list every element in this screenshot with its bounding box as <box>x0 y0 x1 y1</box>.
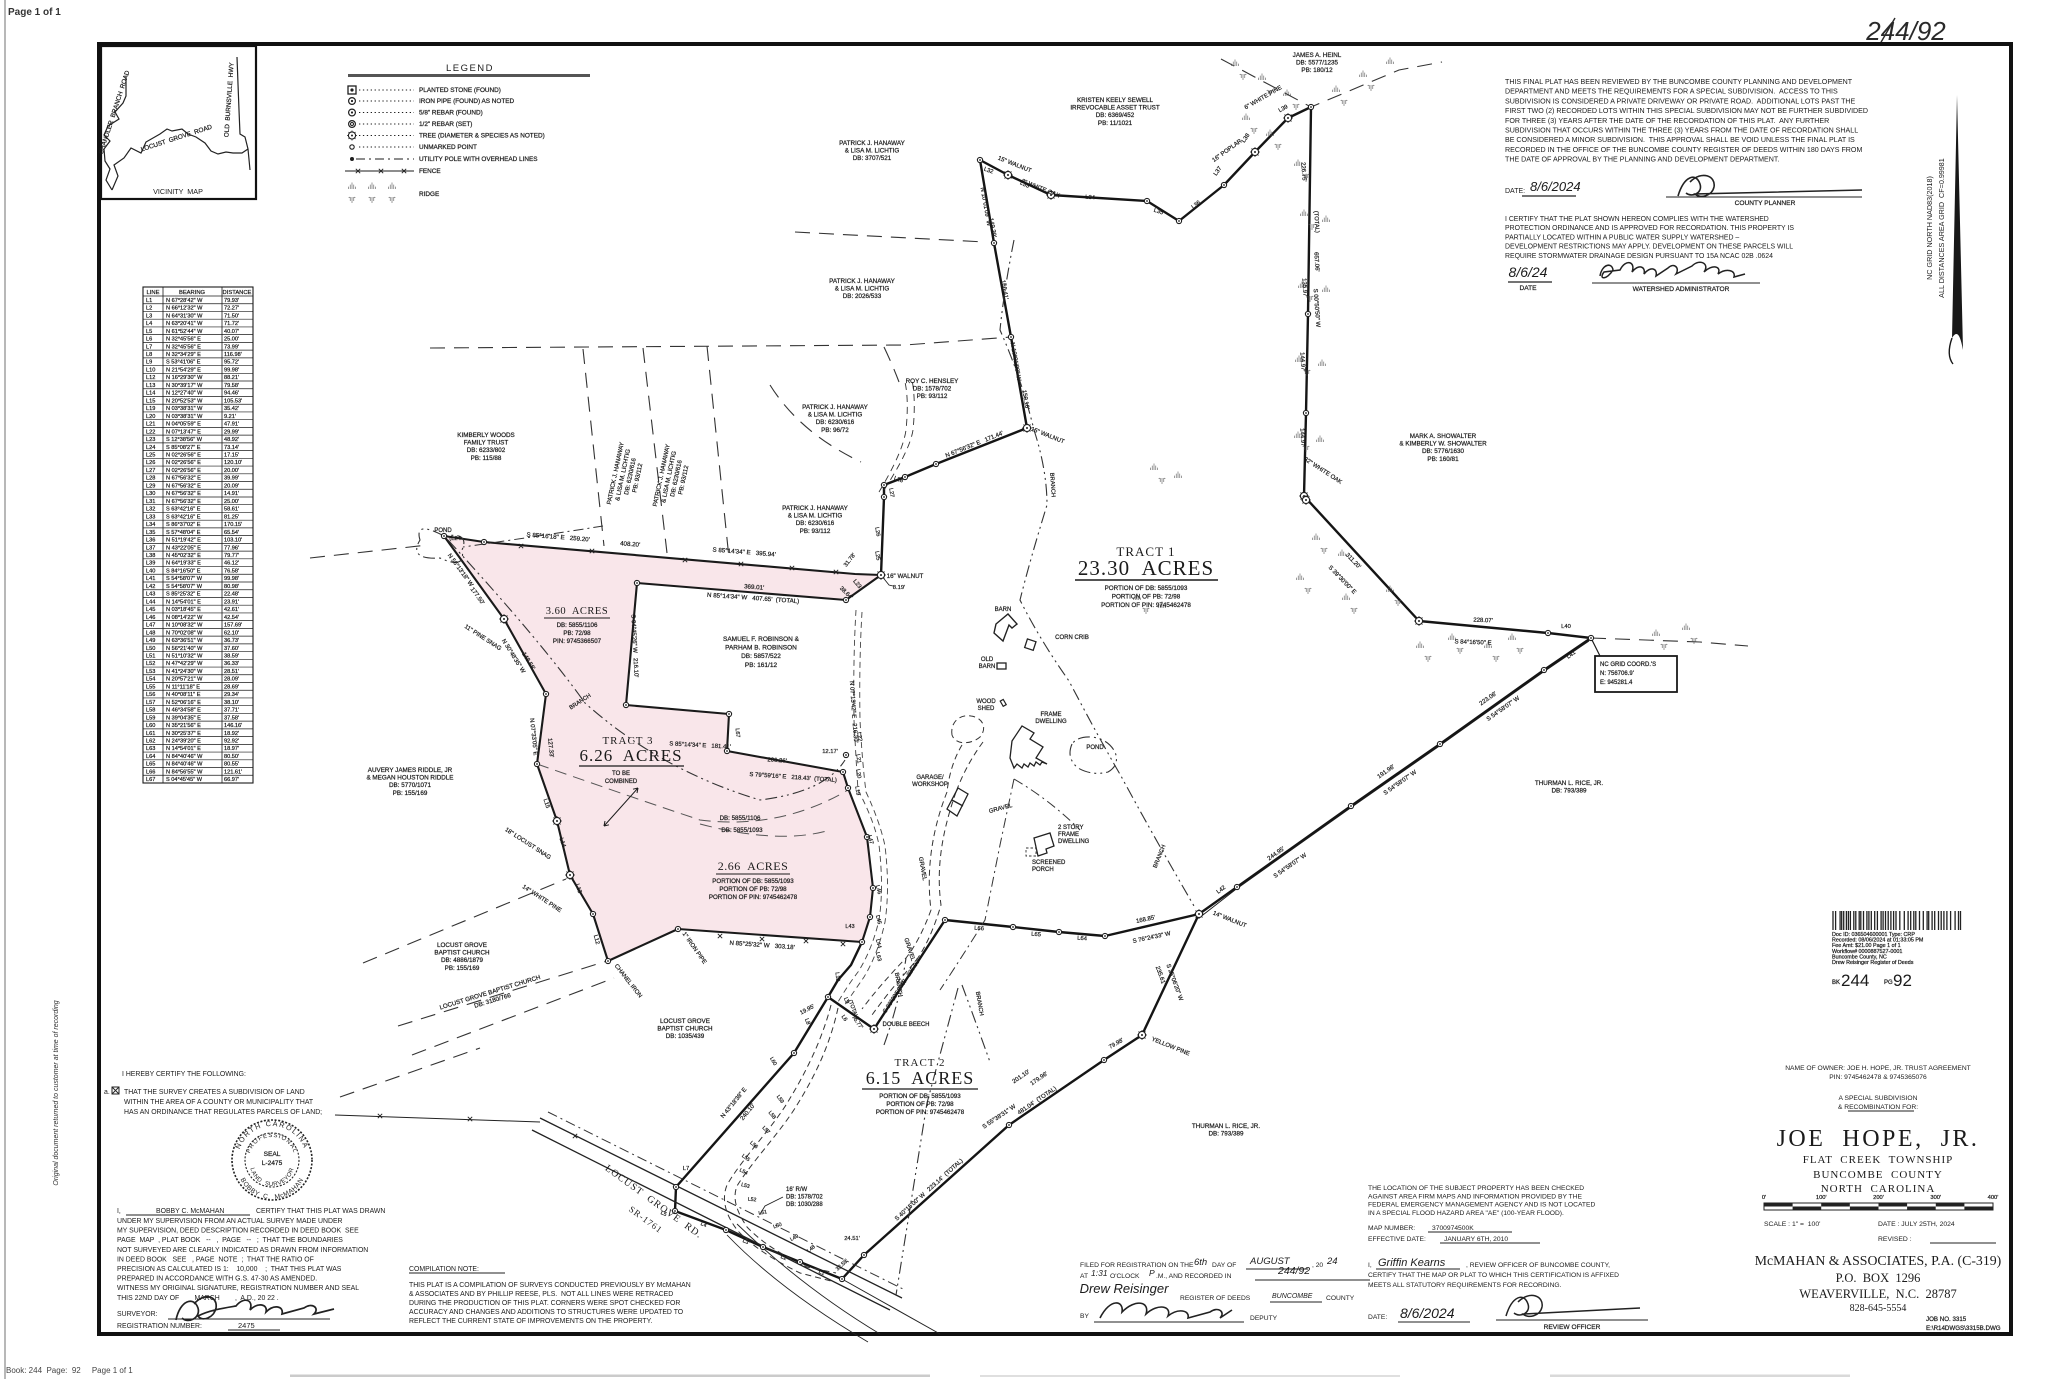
svg-text:58.61': 58.61' <box>224 507 239 513</box>
svg-text:16" WALNUT: 16" WALNUT <box>887 573 924 580</box>
svg-text:I,: I, <box>1368 1262 1372 1269</box>
svg-text:UTILITY POLE WITH OVERHEAD LIN: UTILITY POLE WITH OVERHEAD LINES <box>419 156 538 163</box>
svg-text:3.60 ACRES: 3.60 ACRES <box>546 606 608 617</box>
svg-text:N 30°39'17" W: N 30°39'17" W <box>166 383 203 389</box>
svg-text:CORN CRIB: CORN CRIB <box>1055 635 1089 641</box>
svg-text:DB: 6230/616: DB: 6230/616 <box>816 419 855 426</box>
svg-text:DB: 2026/533: DB: 2026/533 <box>843 293 882 300</box>
svg-text:L42: L42 <box>146 584 155 590</box>
svg-text:PATRICK J. HANAWAY: PATRICK J. HANAWAY <box>829 278 895 285</box>
svg-text:AT: AT <box>1080 1273 1088 1280</box>
svg-text:BUNCOMBE COUNTY: BUNCOMBE COUNTY <box>1813 1169 1943 1181</box>
svg-text:L4: L4 <box>146 321 152 327</box>
svg-text:81.25': 81.25' <box>224 514 239 520</box>
svg-text:I HEREBY CERTIFY THE FOLLOWING: I HEREBY CERTIFY THE FOLLOWING: <box>122 1071 246 1078</box>
svg-text:L65: L65 <box>146 762 155 768</box>
svg-text:REGISTRATION NUMBER:: REGISTRATION NUMBER: <box>117 1323 202 1330</box>
svg-text:N 64°31'30" W: N 64°31'30" W <box>166 313 203 319</box>
svg-text:PIN: 9745366507: PIN: 9745366507 <box>553 638 602 645</box>
svg-text:L19: L19 <box>146 406 155 412</box>
svg-text:12.17': 12.17' <box>822 749 838 755</box>
svg-text:L10: L10 <box>834 972 841 982</box>
svg-text:N 32°45'56" E: N 32°45'56" E <box>166 344 201 350</box>
svg-text:L10: L10 <box>146 367 155 373</box>
svg-text:400': 400' <box>1988 1195 1999 1201</box>
svg-text:DB: 5855/1106: DB: 5855/1106 <box>720 815 761 822</box>
svg-text:LOCUST GROVE: LOCUST GROVE <box>437 942 487 949</box>
svg-text:FAMILY TRUST: FAMILY TRUST <box>464 440 509 447</box>
svg-text:SUBDIVISION THAT OCCURS WITHIN: SUBDIVISION THAT OCCURS WITHIN THE THREE… <box>1505 127 1858 135</box>
svg-text:37.60': 37.60' <box>224 646 239 652</box>
svg-text:COMPILATION NOTE:: COMPILATION NOTE: <box>409 1266 479 1273</box>
svg-text:(L24: (L24 <box>449 536 461 542</box>
svg-text:SEAL: SEAL <box>264 1151 281 1158</box>
svg-text:L67: L67 <box>146 777 155 783</box>
svg-text:, 20: , 20 <box>1312 1262 1323 1269</box>
svg-text:L9: L9 <box>146 360 152 366</box>
svg-text:L30: L30 <box>146 491 155 497</box>
svg-text:L34: L34 <box>146 522 155 528</box>
svg-text:NORTH CAROLINA: NORTH CAROLINA <box>1821 1183 1936 1195</box>
svg-text:39.99': 39.99' <box>224 476 239 482</box>
svg-text:THE LOCATION OF THE SUBJECT PR: THE LOCATION OF THE SUBJECT PROPERTY HAS… <box>1368 1185 1584 1192</box>
svg-text:N 20°52'53" W: N 20°52'53" W <box>166 398 203 404</box>
svg-text:77.96': 77.96' <box>224 545 239 551</box>
svg-text:CERTIFY THAT THIS PLAT WAS DRA: CERTIFY THAT THIS PLAT WAS DRAWN <box>256 1208 385 1215</box>
svg-text:TREE (DIAMETER & SPECIES AS NO: TREE (DIAMETER & SPECIES AS NOTED) <box>419 133 545 140</box>
svg-text:244: 244 <box>1841 971 1869 990</box>
svg-text:JOB NO. 3315: JOB NO. 3315 <box>1926 1316 1967 1323</box>
svg-text:L46: L46 <box>146 615 155 621</box>
svg-text:116.98': 116.98' <box>224 352 242 358</box>
svg-text:DB: 1578/702: DB: 1578/702 <box>913 386 952 393</box>
svg-text:SCALE : 1" = 100': SCALE : 1" = 100' <box>1764 1221 1820 1228</box>
svg-text:120.10': 120.10' <box>224 460 242 466</box>
svg-text:DEPARTMENT AND MEETS THE REQUI: DEPARTMENT AND MEETS THE REQUIREMENTS FO… <box>1505 88 1838 96</box>
svg-text:2 STORY: 2 STORY <box>1058 825 1083 831</box>
svg-text:LINE: LINE <box>147 290 160 296</box>
svg-text:79.58': 79.58' <box>224 383 239 389</box>
svg-text:73.99': 73.99' <box>224 344 239 350</box>
svg-text:L15: L15 <box>146 398 155 404</box>
svg-text:L41: L41 <box>146 576 155 582</box>
svg-text:N 51°10'32" W: N 51°10'32" W <box>166 653 203 659</box>
svg-text:.M., AND RECORDED IN: .M., AND RECORDED IN <box>1156 1273 1232 1280</box>
svg-text:DB: 5855/1093: DB: 5855/1093 <box>721 827 763 834</box>
svg-text:L45: L45 <box>146 607 155 613</box>
svg-text:1:31: 1:31 <box>1091 1268 1108 1278</box>
svg-text:THURMAN L. RICE, JR.: THURMAN L. RICE, JR. <box>1535 780 1603 787</box>
svg-text:200': 200' <box>1873 1195 1884 1201</box>
svg-text:PREPARED IN ACCORDANCE WITH G.: PREPARED IN ACCORDANCE WITH G.S. 47-30 A… <box>117 1276 317 1283</box>
svg-text:1/2" REBAR (SET): 1/2" REBAR (SET) <box>419 121 472 128</box>
svg-text:PATRICK J. HANAWAY: PATRICK J. HANAWAY <box>839 140 905 147</box>
svg-text:DB: 5857/522: DB: 5857/522 <box>741 653 781 660</box>
svg-text:L48: L48 <box>146 630 155 636</box>
svg-text:PORTION OF DB: 5855/1093: PORTION OF DB: 5855/1093 <box>712 878 794 885</box>
svg-text:100': 100' <box>1816 1195 1827 1201</box>
svg-text:PB: 180/12: PB: 180/12 <box>1301 67 1333 74</box>
svg-text:L44: L44 <box>146 599 155 605</box>
svg-text:DB: 6230/616: DB: 6230/616 <box>796 520 835 527</box>
svg-text:L21: L21 <box>146 422 155 428</box>
svg-text:SUBDIVISION IS CONSIDERED A PR: SUBDIVISION IS CONSIDERED A PRIVATE DRIV… <box>1505 97 1856 105</box>
svg-text:N 02°26'56" E: N 02°26'56" E <box>166 453 201 459</box>
svg-text:L35: L35 <box>146 530 155 536</box>
svg-text:FOR THREE (3) YEARS AFTER THE: FOR THREE (3) YEARS AFTER THE DATE OF TH… <box>1505 117 1829 125</box>
svg-text:L5: L5 <box>146 329 152 335</box>
svg-text:PB: 93/112: PB: 93/112 <box>917 393 948 400</box>
svg-text:L47: L47 <box>146 623 155 629</box>
svg-text:MY SUPERVISION, DEED DESCRIPTI: MY SUPERVISION, DEED DESCRIPTION RECORDE… <box>117 1228 359 1235</box>
svg-text:N 67°28'42" W: N 67°28'42" W <box>166 298 203 304</box>
svg-text:N 43°22'05" E: N 43°22'05" E <box>166 545 201 551</box>
svg-text:6.15 ACRES: 6.15 ACRES <box>866 1068 975 1088</box>
svg-text:24: 24 <box>1326 1256 1338 1267</box>
svg-text:PORTION OF PB: 72/98: PORTION OF PB: 72/98 <box>719 886 787 893</box>
svg-text:L52: L52 <box>748 1197 757 1204</box>
svg-text:KIMBERLY WOODS: KIMBERLY WOODS <box>457 432 515 439</box>
svg-text:UNMARKED POINT: UNMARKED POINT <box>419 144 477 151</box>
svg-text:N 14°54'01" E: N 14°54'01" E <box>166 599 201 605</box>
svg-text:S 12°38'56" W: S 12°38'56" W <box>166 437 203 443</box>
svg-text:9.21': 9.21' <box>224 414 236 420</box>
svg-text:N 67°56'32" E: N 67°56'32" E <box>166 491 201 497</box>
svg-text:P.O. BOX 1296: P.O. BOX 1296 <box>1836 1271 1921 1285</box>
svg-text:WATERSHED ADMINISTRATOR: WATERSHED ADMINISTRATOR <box>1633 286 1730 293</box>
svg-text:L39: L39 <box>146 561 155 567</box>
svg-text:PLANTED STONE (FOUND): PLANTED STONE (FOUND) <box>419 87 501 94</box>
svg-text:N 03°18'45" E: N 03°18'45" E <box>166 607 201 613</box>
svg-text:BY: BY <box>1080 1313 1089 1320</box>
svg-text:N 67°56'32" E: N 67°56'32" E <box>166 476 201 482</box>
svg-text:N 02°26'56" E: N 02°26'56" E <box>166 460 201 466</box>
svg-text:S 85°25'32" E: S 85°25'32" E <box>166 592 201 598</box>
svg-text:L40: L40 <box>1561 624 1571 630</box>
svg-text:DATE:: DATE: <box>1368 1314 1387 1321</box>
svg-text:PARHAM B. ROBINSON: PARHAM B. ROBINSON <box>725 645 797 652</box>
svg-text:REQUIRE STORMWATER DRAINAGE DE: REQUIRE STORMWATER DRAINAGE DESIGN PURSU… <box>1505 253 1773 260</box>
svg-text:FENCE: FENCE <box>419 168 441 175</box>
svg-text:FRAME: FRAME <box>1058 832 1079 838</box>
svg-text:20.09': 20.09' <box>224 483 239 489</box>
svg-text:244/92: 244/92 <box>1865 16 1946 46</box>
svg-text:KRISTEN KEELY SEWELL: KRISTEN KEELY SEWELL <box>1077 97 1154 104</box>
svg-text:TO BE: TO BE <box>612 771 630 777</box>
svg-text:L51: L51 <box>146 653 155 659</box>
svg-text:SCREENED: SCREENED <box>1032 860 1066 866</box>
svg-text:L38: L38 <box>146 553 155 559</box>
svg-text:N 32°34'29" E: N 32°34'29" E <box>166 352 201 358</box>
svg-text:L66: L66 <box>974 926 984 933</box>
svg-text:23.91': 23.91' <box>224 599 239 605</box>
svg-text:L20: L20 <box>146 414 155 420</box>
svg-text:N 03°38'31" W: N 03°38'31" W <box>166 406 203 412</box>
svg-text:25.00': 25.00' <box>224 499 239 505</box>
svg-text:L36: L36 <box>146 538 155 544</box>
svg-text:369.01': 369.01' <box>744 583 765 591</box>
svg-text:NC GRID COORD.'S: NC GRID COORD.'S <box>1600 662 1656 668</box>
svg-text:OLD: OLD <box>981 657 994 663</box>
svg-text:N 47°42'29" W: N 47°42'29" W <box>166 661 203 667</box>
svg-text:L28: L28 <box>146 476 155 482</box>
svg-text:IN A SPECIAL FLOOD HAZARD AREA: IN A SPECIAL FLOOD HAZARD AREA "AE" (100… <box>1368 1210 1564 1217</box>
svg-text:PG: PG <box>1884 980 1893 986</box>
svg-text:FIRST TWO (2) RECORDED LOTS WI: FIRST TWO (2) RECORDED LOTS WITHIN THIS … <box>1505 107 1868 115</box>
svg-text:0': 0' <box>1762 1195 1766 1201</box>
svg-text:L29: L29 <box>146 483 155 489</box>
svg-text:S 57°48'04" E: S 57°48'04" E <box>166 530 201 536</box>
svg-text:8/6/2024: 8/6/2024 <box>1530 179 1581 194</box>
svg-text:N 84°40'46" W: N 84°40'46" W <box>166 754 203 760</box>
svg-text:47.91': 47.91' <box>224 422 239 428</box>
svg-text:E: 945281.4: E: 945281.4 <box>1600 680 1633 686</box>
svg-text:BUNCOMBE: BUNCOMBE <box>1272 1293 1313 1300</box>
svg-text:PB: 155/169: PB: 155/169 <box>393 790 428 797</box>
svg-text:42.61': 42.61' <box>224 607 239 613</box>
svg-text:DB: 6233/802: DB: 6233/802 <box>467 447 506 454</box>
svg-text:L33: L33 <box>146 514 155 520</box>
svg-text:N 24°39'20" E: N 24°39'20" E <box>166 739 201 745</box>
svg-text:N 46°34'58" E: N 46°34'58" E <box>166 708 201 714</box>
svg-text:BE CONSIDERED A MINOR SUBDIVIS: BE CONSIDERED A MINOR SUBDIVISION. THIS … <box>1505 136 1855 144</box>
svg-text:Book: 244 Page: 92 Page: Book: 244 Page: 92 Page 1 of 1 <box>6 1366 133 1375</box>
svg-text:PB: 96/72: PB: 96/72 <box>821 427 849 434</box>
svg-text:JAMES A. HEINL: JAMES A. HEINL <box>1293 52 1342 59</box>
svg-text:L61: L61 <box>146 731 155 737</box>
svg-text:AUVERY JAMES RIDDLE, JR: AUVERY JAMES RIDDLE, JR <box>368 767 453 774</box>
svg-text:MARK A. SHOWALTER: MARK A. SHOWALTER <box>1410 433 1477 440</box>
svg-text:N 16°29'30" W: N 16°29'30" W <box>166 375 203 381</box>
svg-text:AGAINST AREA FIRM MAPS AND INF: AGAINST AREA FIRM MAPS AND INFORMATION P… <box>1368 1193 1582 1200</box>
svg-text:L7: L7 <box>146 344 152 350</box>
svg-text:48.92': 48.92' <box>224 437 239 443</box>
svg-text:16' R/W: 16' R/W <box>786 1187 807 1193</box>
svg-text:P: P <box>1149 1268 1155 1278</box>
svg-text:Drew Reisinger Register of Dee: Drew Reisinger Register of Deeds <box>1832 960 1914 966</box>
svg-text:170.15': 170.15' <box>224 522 242 528</box>
svg-text:DATE : JULY 25TH, 2024: DATE : JULY 25TH, 2024 <box>1878 1221 1955 1228</box>
svg-text:NC GRID NORTH NAD83(2018): NC GRID NORTH NAD83(2018) <box>1925 176 1934 280</box>
svg-text:JANUARY 6TH, 2010: JANUARY 6TH, 2010 <box>1444 1236 1508 1243</box>
svg-text:PATRICK J. HANAWAY: PATRICK J. HANAWAY <box>802 404 868 411</box>
svg-text:N 41°24'30" W: N 41°24'30" W <box>166 669 203 675</box>
svg-text:DB: 6369/452: DB: 6369/452 <box>1096 112 1135 119</box>
svg-text:LOCUST GROVE: LOCUST GROVE <box>660 1018 710 1025</box>
svg-text:McMAHAN & ASSOCIATES, P.A. (C-: McMAHAN & ASSOCIATES, P.A. (C-319) <box>1755 1253 2001 1269</box>
svg-text:L59: L59 <box>146 715 155 721</box>
svg-text:79.93': 79.93' <box>224 298 239 304</box>
svg-text:42.54': 42.54' <box>224 615 239 621</box>
svg-text:N 32°45'56" E: N 32°45'56" E <box>166 337 201 343</box>
svg-text:76.58': 76.58' <box>224 568 239 574</box>
svg-text:& MEGAN HOUSTON RIDDLE: & MEGAN HOUSTON RIDDLE <box>366 775 453 782</box>
svg-text:Page 1 of 1: Page 1 of 1 <box>8 7 61 18</box>
svg-text:L26: L26 <box>146 460 155 466</box>
svg-text:L67: L67 <box>734 728 741 738</box>
svg-text:PARTIALLY LOCATED WITHIN A PUB: PARTIALLY LOCATED WITHIN A PUBLIC WATER … <box>1505 234 1739 241</box>
svg-text:RIDGE: RIDGE <box>419 191 439 198</box>
svg-text:L65: L65 <box>1031 932 1041 939</box>
svg-text:DB: 793/389: DB: 793/389 <box>1551 788 1587 795</box>
svg-text:PIN: 9745462478 & 9745365076: PIN: 9745462478 & 9745365076 <box>1829 1074 1927 1081</box>
svg-text:S 54°58'07" W: S 54°58'07" W <box>166 576 203 582</box>
svg-text:RECORDED IN THE OFFICE OF THE: RECORDED IN THE OFFICE OF THE BUNCOMBE C… <box>1505 146 1862 154</box>
svg-text:& LISA M. LICHTIG: & LISA M. LICHTIG <box>788 513 843 520</box>
svg-text:71.50': 71.50' <box>224 313 239 319</box>
svg-text:WITHIN THE AREA OF A COUNTY OR: WITHIN THE AREA OF A COUNTY OR MUNICIPAL… <box>124 1099 314 1106</box>
svg-text:8/6/24: 8/6/24 <box>1509 264 1548 280</box>
svg-text:PB: 93/112: PB: 93/112 <box>800 528 831 535</box>
svg-text:38.10': 38.10' <box>224 700 239 706</box>
svg-text:FLAT CREEK TOWNSHIP: FLAT CREEK TOWNSHIP <box>1803 1154 1954 1166</box>
svg-text:L56: L56 <box>146 692 155 698</box>
svg-text:DWELLING: DWELLING <box>1035 719 1067 725</box>
svg-text:N 45°02'32" E: N 45°02'32" E <box>166 553 201 559</box>
svg-text:N 07°13'47" E: N 07°13'47" E <box>166 429 201 435</box>
svg-text:L49: L49 <box>146 638 155 644</box>
svg-text:L7: L7 <box>683 1166 689 1172</box>
svg-text:SHED: SHED <box>978 706 995 712</box>
svg-text:L22: L22 <box>146 429 155 435</box>
svg-text:L43: L43 <box>845 924 854 930</box>
svg-text:REVIEW OFFICER: REVIEW OFFICER <box>1544 1324 1601 1331</box>
svg-text:S 85°08'27" E: S 85°08'27" E <box>166 445 201 451</box>
svg-text:L3: L3 <box>146 313 152 319</box>
svg-text:28.09': 28.09' <box>224 677 239 683</box>
svg-text:DB: 5577/1235: DB: 5577/1235 <box>1296 60 1339 67</box>
svg-text:GARAGE/: GARAGE/ <box>916 775 944 781</box>
svg-text:COUNTY: COUNTY <box>1326 1295 1355 1302</box>
svg-text:94.46': 94.46' <box>224 391 239 397</box>
svg-text:828-645-5554: 828-645-5554 <box>1850 1303 1907 1314</box>
svg-text:L6: L6 <box>146 337 152 343</box>
svg-text:Griffin Kearns: Griffin Kearns <box>1378 1257 1446 1269</box>
svg-text:WEAVERVILLE, N.C. 28787: WEAVERVILLE, N.C. 28787 <box>1799 1287 1956 1301</box>
svg-text:3700974500K: 3700974500K <box>1432 1225 1474 1232</box>
svg-text:35.42': 35.42' <box>224 406 239 412</box>
svg-text:L25: L25 <box>146 453 155 459</box>
svg-text:L66: L66 <box>146 769 155 775</box>
svg-text:DWELLING: DWELLING <box>1058 839 1090 845</box>
svg-text:DISTANCE: DISTANCE <box>223 290 252 296</box>
svg-text:6th: 6th <box>1194 1257 1207 1268</box>
svg-text:2475: 2475 <box>238 1321 255 1330</box>
svg-text:ROY C. HENSLEY: ROY C. HENSLEY <box>906 378 960 385</box>
svg-text:2.66 ACRES: 2.66 ACRES <box>718 859 789 873</box>
svg-text:28.69': 28.69' <box>224 684 239 690</box>
svg-text:20.00': 20.00' <box>224 468 239 474</box>
svg-text:L27: L27 <box>146 468 155 474</box>
svg-text:14.91': 14.91' <box>224 491 239 497</box>
svg-text:& LISA M. LICHTIG: & LISA M. LICHTIG <box>845 148 900 155</box>
svg-text:COUNTY PLANNER: COUNTY PLANNER <box>1735 200 1796 207</box>
svg-text:29.99': 29.99' <box>224 429 239 435</box>
svg-text:24.51': 24.51' <box>844 1236 860 1242</box>
svg-text:N 10°08'32" W: N 10°08'32" W <box>166 623 203 629</box>
svg-text:FEDERAL EMERGENCY MANAGEMENT A: FEDERAL EMERGENCY MANAGEMENT AGENCY AND … <box>1368 1202 1595 1209</box>
svg-text:L58: L58 <box>146 708 155 714</box>
svg-text:MEETS ALL STATUTORY REQUIREMEN: MEETS ALL STATUTORY REQUIREMENTS FOR REC… <box>1368 1282 1562 1289</box>
svg-text:REGISTER OF DEEDS: REGISTER OF DEEDS <box>1180 1295 1251 1302</box>
svg-text:CERTIFY THAT THE MAP OR PLAT T: CERTIFY THAT THE MAP OR PLAT TO WHICH TH… <box>1368 1272 1619 1279</box>
svg-text:DAY OF: DAY OF <box>1212 1262 1236 1269</box>
svg-text:L32: L32 <box>146 507 155 513</box>
svg-text:300': 300' <box>1930 1195 1941 1201</box>
svg-text:36.33': 36.33' <box>224 661 239 667</box>
svg-text:L57: L57 <box>146 700 155 706</box>
svg-text:88.21': 88.21' <box>224 375 239 381</box>
svg-text:UNDER MY SUPERVISION FROM AN A: UNDER MY SUPERVISION FROM AN ACTUAL SURV… <box>117 1218 343 1225</box>
svg-text:29.34': 29.34' <box>224 692 239 698</box>
svg-text:VICINITY MAP: VICINITY MAP <box>153 187 203 196</box>
svg-text:PORTION OF DB: 5855/1093: PORTION OF DB: 5855/1093 <box>1105 585 1188 592</box>
svg-text:BAPTIST CHURCH: BAPTIST CHURCH <box>657 1026 713 1033</box>
svg-text:N 63°20'41" W: N 63°20'41" W <box>166 321 203 327</box>
svg-text:S 84°16'50" E: S 84°16'50" E <box>166 568 201 574</box>
svg-text:25.00': 25.00' <box>224 337 239 343</box>
svg-text:18.97': 18.97' <box>224 746 239 752</box>
svg-text:L64: L64 <box>1077 936 1088 943</box>
svg-text:I,: I, <box>117 1208 121 1215</box>
svg-text:EFFECTIVE DATE:: EFFECTIVE DATE: <box>1368 1236 1426 1243</box>
svg-text:BARN: BARN <box>995 607 1012 613</box>
svg-text:8/6/2024: 8/6/2024 <box>1400 1305 1455 1321</box>
svg-text:, REVIEW OFFICER OF BUNCOMBE C: , REVIEW OFFICER OF BUNCOMBE COUNTY, <box>1466 1262 1610 1269</box>
svg-text:Original document returned to: Original document returned to customer a… <box>53 1000 60 1185</box>
svg-text:L-2475: L-2475 <box>262 1160 283 1167</box>
svg-text:PB: 161/12: PB: 161/12 <box>745 662 778 669</box>
svg-text:L1: L1 <box>146 298 152 304</box>
svg-text:DB: 3707/521: DB: 3707/521 <box>853 155 892 162</box>
svg-text:N 66°12'32" W: N 66°12'32" W <box>166 306 203 312</box>
svg-text:N 14°54'01" E: N 14°54'01" E <box>166 746 201 752</box>
svg-text:71.72': 71.72' <box>224 321 239 327</box>
svg-text:92: 92 <box>1893 971 1912 990</box>
svg-text:99.98': 99.98' <box>224 367 239 373</box>
svg-text:& LISA M. LICHTIG: & LISA M. LICHTIG <box>835 286 890 293</box>
svg-text:HAS AN ORDINANCE THAT REGULATE: HAS AN ORDINANCE THAT REGULATES PARCELS … <box>124 1109 322 1116</box>
svg-text:37.58': 37.58' <box>224 715 239 721</box>
svg-text:COMBINED: COMBINED <box>605 779 638 785</box>
svg-text:N 04°05'59" E: N 04°05'59" E <box>166 422 201 428</box>
svg-text:REVISED :: REVISED : <box>1878 1236 1912 1243</box>
svg-text:N 67°56'32" E: N 67°56'32" E <box>166 499 201 505</box>
svg-text:S 63°42'16" E: S 63°42'16" E <box>166 507 201 513</box>
svg-text:38.59': 38.59' <box>224 653 239 659</box>
svg-text:SURVEYOR:: SURVEYOR: <box>117 1311 158 1318</box>
svg-text:N 11°11'18" E: N 11°11'18" E <box>166 684 200 690</box>
svg-text:PB: 72/98: PB: 72/98 <box>563 630 591 637</box>
svg-text:244/92: 244/92 <box>1277 1265 1310 1277</box>
svg-text:PORTION OF PIN: 9745462478: PORTION OF PIN: 9745462478 <box>709 894 798 901</box>
svg-text:79.77': 79.77' <box>224 553 239 559</box>
svg-text:N 35°21'56" E: N 35°21'56" E <box>166 723 201 729</box>
svg-text:O'CLOCK: O'CLOCK <box>1110 1273 1140 1280</box>
svg-text:N 20°57'21" W: N 20°57'21" W <box>166 677 203 683</box>
svg-text:146.16': 146.16' <box>224 723 242 729</box>
svg-text:ALL DISTANCES AREA GRID CF=0.: ALL DISTANCES AREA GRID CF=0.99981 <box>1937 158 1946 298</box>
svg-text:& KIMBERLY W. SHOWALTER: & KIMBERLY W. SHOWALTER <box>1399 441 1487 448</box>
svg-text:PORTION OF DB: 5855/1093: PORTION OF DB: 5855/1093 <box>879 1093 961 1100</box>
svg-text:80.55': 80.55' <box>224 762 239 768</box>
svg-text:WITNESS MY ORIGINAL SIGNATURE,: WITNESS MY ORIGINAL SIGNATURE, REGISTRAT… <box>117 1285 359 1292</box>
svg-text:L50: L50 <box>146 646 155 652</box>
svg-text:121.61': 121.61' <box>224 769 242 775</box>
svg-text:BARN: BARN <box>979 664 996 670</box>
svg-text:L2: L2 <box>146 306 152 312</box>
svg-text:46.12': 46.12' <box>224 561 239 567</box>
